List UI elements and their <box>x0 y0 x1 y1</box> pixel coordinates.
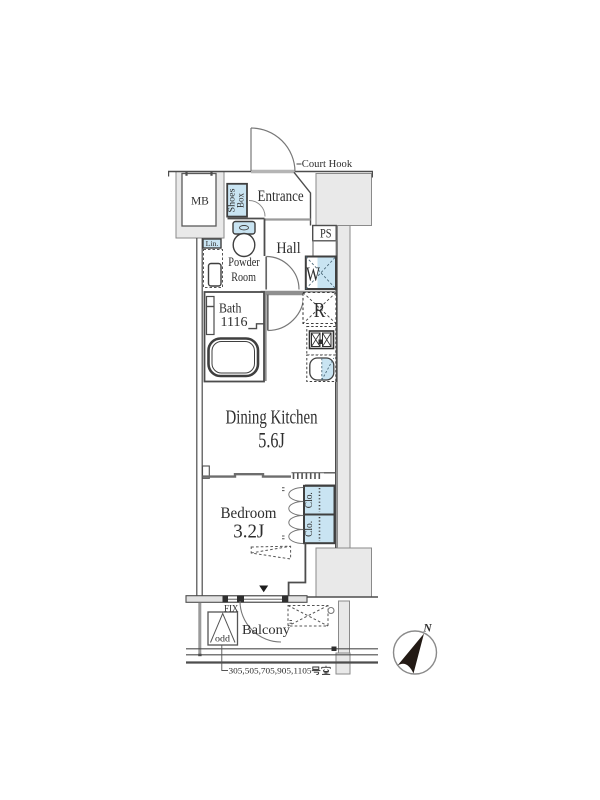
svg-text:Entrance: Entrance <box>258 188 304 205</box>
svg-text:Dining Kitchen: Dining Kitchen <box>226 407 318 429</box>
svg-text:3.2J: 3.2J <box>233 520 264 542</box>
svg-text:Clo.: Clo. <box>304 521 315 537</box>
svg-text:Lin.: Lin. <box>206 239 219 248</box>
svg-text:odd: odd <box>215 634 230 644</box>
svg-text:Court Hook: Court Hook <box>302 159 353 170</box>
svg-text:N: N <box>422 623 432 635</box>
svg-text:Clo.: Clo. <box>304 492 315 508</box>
svg-text:MB: MB <box>191 195 209 207</box>
svg-text:W: W <box>306 264 320 286</box>
svg-text:Powder: Powder <box>228 255 260 269</box>
svg-text:Balcony: Balcony <box>242 623 290 638</box>
svg-text:R: R <box>314 298 326 322</box>
svg-text:1116: 1116 <box>221 314 248 329</box>
svg-text:Room: Room <box>231 270 256 284</box>
svg-text:Box: Box <box>237 193 247 208</box>
svg-text:305,505,705,905,1105: 305,505,705,905,1105 <box>229 665 312 675</box>
svg-text:5.6J: 5.6J <box>258 428 285 453</box>
svg-text:PS: PS <box>320 226 332 240</box>
svg-text:Hall: Hall <box>276 240 300 257</box>
